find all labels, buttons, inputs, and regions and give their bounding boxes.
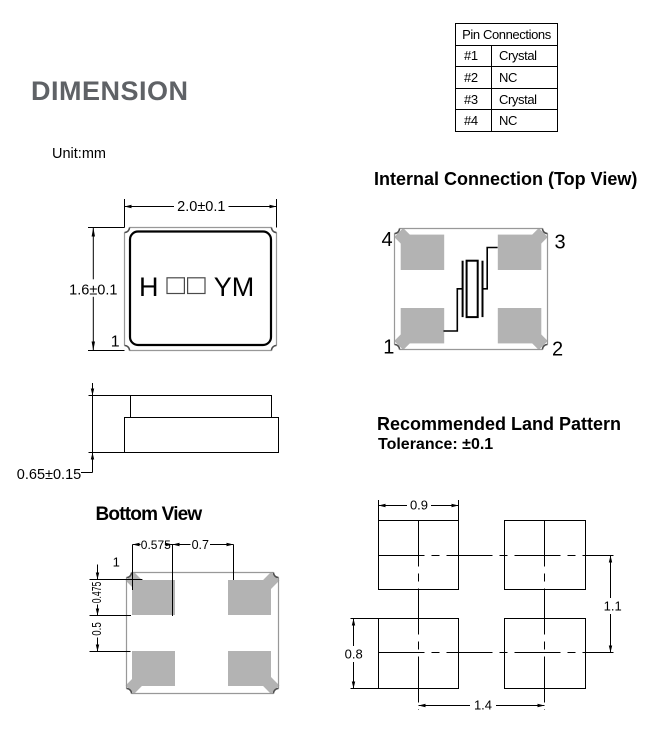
svg-text:0.7: 0.7 xyxy=(192,538,209,552)
svg-text:1.1: 1.1 xyxy=(604,599,622,614)
svg-text:0.9: 0.9 xyxy=(410,498,428,513)
svg-text:1: 1 xyxy=(113,554,120,569)
svg-text:2.0±0.1: 2.0±0.1 xyxy=(177,199,225,215)
svg-text:1: 1 xyxy=(383,337,394,359)
svg-text:0.475: 0.475 xyxy=(89,582,104,604)
svg-text:3: 3 xyxy=(555,232,566,254)
svg-text:0.8: 0.8 xyxy=(345,647,363,662)
svg-text:4: 4 xyxy=(382,229,393,251)
svg-text:H: H xyxy=(139,272,159,302)
svg-text:0.65±0.15: 0.65±0.15 xyxy=(17,467,81,483)
svg-text:1: 1 xyxy=(111,334,120,351)
svg-text:1.4: 1.4 xyxy=(474,698,492,713)
svg-text:0.575: 0.575 xyxy=(141,538,171,552)
svg-text:1.6±0.1: 1.6±0.1 xyxy=(69,283,117,299)
svg-text:0.5: 0.5 xyxy=(89,622,104,636)
svg-text:YM: YM xyxy=(214,272,255,302)
svg-text:2: 2 xyxy=(552,339,563,361)
